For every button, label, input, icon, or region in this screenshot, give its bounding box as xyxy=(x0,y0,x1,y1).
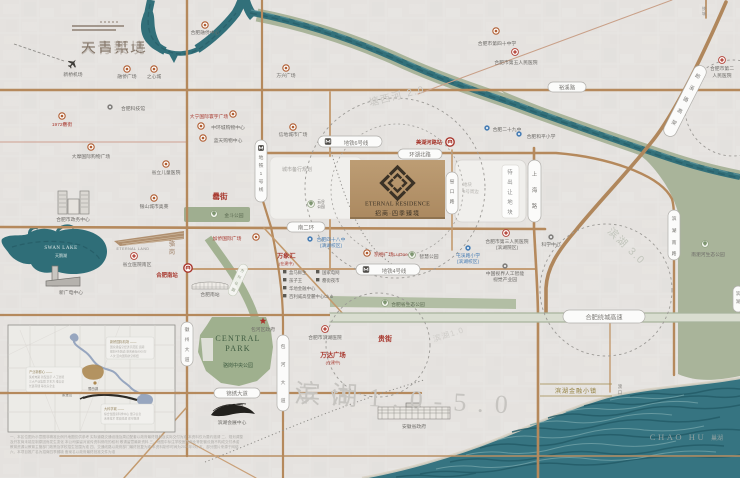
svg-text:一、本区位图为示意图非精准比例尺地图仅供参考 实际道路交通设: 一、本区位图为示意图非精准比例尺地图仅供参考 实际道路交通设施及周边配套以政府最… xyxy=(10,434,243,439)
svg-text:未来技术 聚变能源 深空探测: 未来技术 聚变能源 深空探测 xyxy=(104,417,139,421)
svg-text:合肥南站: 合肥南站 xyxy=(156,271,178,279)
svg-text:天鹅湖: 天鹅湖 xyxy=(55,252,67,258)
svg-text:道: 道 xyxy=(185,356,190,363)
svg-text:岗: 岗 xyxy=(169,249,175,256)
svg-text:合肥二十九中: 合肥二十九中 xyxy=(493,126,522,133)
svg-text:CENTRAL: CENTRAL xyxy=(215,334,260,343)
svg-text:智慧公园: 智慧公园 xyxy=(419,253,438,260)
svg-text:地铁4号线: 地铁4号线 xyxy=(382,267,407,275)
svg-text:滨: 滨 xyxy=(672,215,677,222)
svg-text:盒马鲜生: 盒马鲜生 xyxy=(289,269,307,276)
svg-text:让: 让 xyxy=(507,188,513,196)
svg-text:路: 路 xyxy=(450,198,455,205)
svg-text:南二环: 南二环 xyxy=(298,224,315,232)
svg-text:(滨湖校区): (滨湖校区) xyxy=(457,258,480,265)
svg-text:骆: 骆 xyxy=(169,240,175,248)
svg-text:大科学城 ——: 大科学城 —— xyxy=(104,406,125,411)
svg-text:新桥国际机场 ——: 新桥国际机场 —— xyxy=(110,339,137,344)
svg-text:出: 出 xyxy=(507,178,512,186)
svg-text:新广电中心: 新广电中心 xyxy=(59,289,83,296)
svg-text:中国视界人工智能: 中国视界人工智能 xyxy=(486,270,525,277)
svg-text:合肥科技馆: 合肥科技馆 xyxy=(121,105,145,112)
svg-text:ETERNAL RESIDENCE: ETERNAL RESIDENCE xyxy=(365,202,430,208)
svg-text:信地城市广场: 信地城市广场 xyxy=(279,131,308,138)
svg-text:凯德广场LuOne: 凯德广场LuOne xyxy=(374,251,408,258)
svg-text:孩子王: 孩子王 xyxy=(289,277,303,284)
svg-text:安徽省政府: 安徽省政府 xyxy=(402,423,426,430)
svg-text:PARK: PARK xyxy=(225,344,250,353)
svg-text:之心城: 之心城 xyxy=(147,73,162,80)
svg-text:国家电网: 国家电网 xyxy=(322,269,340,276)
svg-text:(在建中): (在建中) xyxy=(279,260,294,266)
svg-text:合肥融侨中心: 合肥融侨中心 xyxy=(191,29,220,36)
svg-text:银山城市奥莱: 银山城市奥莱 xyxy=(140,203,169,210)
svg-text:绕: 绕 xyxy=(702,6,706,11)
svg-text:1972罍街: 1972罍街 xyxy=(52,121,72,128)
svg-text:口: 口 xyxy=(618,390,622,395)
svg-text:集成电路 新型显示 人工智能: 集成电路 新型显示 人工智能 xyxy=(29,375,64,379)
svg-text:8号周边: 8号周边 xyxy=(463,188,479,195)
svg-text:中环城购物中心: 中环城购物中心 xyxy=(211,124,245,131)
svg-text:渡: 渡 xyxy=(618,383,623,390)
svg-text:徽: 徽 xyxy=(185,326,190,333)
svg-text:省立儿童医院: 省立儿童医院 xyxy=(152,169,181,176)
svg-text:合肥市第二: 合肥市第二 xyxy=(710,65,734,72)
svg-text:大: 大 xyxy=(185,346,190,353)
svg-text:ETERNAL LAND: ETERNAL LAND xyxy=(116,247,149,251)
svg-text:南淝河生态公园: 南淝河生态公园 xyxy=(691,251,725,258)
svg-text:地: 地 xyxy=(259,154,264,161)
svg-text:合肥市第四十中学: 合肥市第四十中学 xyxy=(478,40,517,47)
svg-text:滨湖金融小镇: 滨湖金融小镇 xyxy=(555,387,597,395)
svg-text:CHAO HU: CHAO HU xyxy=(650,432,706,442)
svg-text:云谷: 云谷 xyxy=(317,199,325,204)
svg-text:湖: 湖 xyxy=(672,227,677,234)
svg-text:大: 大 xyxy=(281,379,286,386)
svg-text:包河区政府: 包河区政府 xyxy=(251,326,275,333)
svg-text:省立医院南区: 省立医院南区 xyxy=(123,261,152,268)
svg-text:屯溪路小学: 屯溪路小学 xyxy=(456,252,480,259)
svg-text:天青椠境: 天青椠境 xyxy=(81,40,147,56)
svg-text:海: 海 xyxy=(532,186,538,194)
svg-text:1: 1 xyxy=(260,171,263,177)
svg-text:号: 号 xyxy=(259,179,264,185)
svg-text:人次 迈向国际航空枢纽: 人次 迈向国际航空枢纽 xyxy=(110,354,139,358)
svg-text:招商·四季臻境: 招商·四季臻境 xyxy=(375,210,420,218)
svg-text:公园: 公园 xyxy=(317,204,325,209)
svg-text:湖: 湖 xyxy=(736,298,740,305)
svg-text:蜀西湖: 蜀西湖 xyxy=(88,386,99,391)
svg-text:大宁国际寰宇广场: 大宁国际寰宇广场 xyxy=(190,113,229,120)
svg-text:万达广场: 万达广场 xyxy=(319,350,346,359)
svg-text:环湖北路: 环湖北路 xyxy=(409,151,431,159)
svg-text:及开发商未能控制原因而发生变化 本公司保留对宣传资料修改的权: 及开发商未能控制原因而发生变化 本公司保留对宣传资料修改的权利 敬请留意最新资料… xyxy=(10,439,240,444)
svg-text:金斗公园: 金斗公园 xyxy=(224,212,243,219)
svg-text:融侨广场: 融侨广场 xyxy=(117,73,136,80)
svg-text:美湖河路站: 美湖河路站 xyxy=(416,138,443,146)
svg-text:包: 包 xyxy=(281,343,286,350)
svg-text:河: 河 xyxy=(281,361,286,368)
svg-text:综合性国家科学中心 量子信息: 综合性国家科学中心 量子信息 xyxy=(104,412,141,416)
svg-text:人民医院: 人民医院 xyxy=(712,72,731,79)
svg-text:万象汇: 万象汇 xyxy=(276,252,296,260)
svg-text:国家级临空经济示范区 远期: 国家级临空经济示范区 远期 xyxy=(110,345,145,349)
svg-text:教育资源以教育主管部门政策及学校招生范围为准 四、交通线路以: 教育资源以教育主管部门政策及学校招生范围为准 四、交通线路以政府部门最终批复为准… xyxy=(10,444,239,449)
svg-text:南: 南 xyxy=(672,239,677,246)
svg-text:规划4条跑道 旅客吞吐8000万: 规划4条跑道 旅客吞吐8000万 xyxy=(110,350,147,354)
svg-text:合肥市第三人民医院: 合肥市第三人民医院 xyxy=(485,238,528,245)
svg-text:合肥和平小学: 合肥和平小学 xyxy=(527,133,556,140)
svg-text:巢湖: 巢湖 xyxy=(711,434,723,442)
svg-text:贵街: 贵街 xyxy=(378,334,392,343)
svg-text:(在建中): (在建中) xyxy=(326,359,341,365)
svg-text:锦绣大道: 锦绣大道 xyxy=(226,390,248,398)
svg-text:窑: 窑 xyxy=(450,178,455,185)
svg-text:华地金融中心: 华地金融中心 xyxy=(289,285,316,292)
svg-text:六、本项目推广名为招商四季臻境 备案名以政府最终批准文件为准: 六、本项目推广名为招商四季臻境 备案名以政府最终批准文件为准 xyxy=(10,449,116,454)
svg-text:SWAN LAKE: SWAN LAKE xyxy=(44,246,77,251)
svg-text:口: 口 xyxy=(450,189,455,195)
svg-text:铁: 铁 xyxy=(259,162,264,169)
svg-text:滨湖会展中心: 滨湖会展中心 xyxy=(218,419,247,426)
svg-text:块: 块 xyxy=(507,208,513,216)
svg-text:三大产业集群 京东方 维信诺: 三大产业集群 京东方 维信诺 xyxy=(29,380,64,384)
svg-text:合肥市滨湖医院: 合肥市滨湖医院 xyxy=(308,334,342,341)
svg-text:地: 地 xyxy=(507,198,513,206)
svg-text:骆岗中央公园: 骆岗中央公园 xyxy=(223,362,253,369)
svg-text:路: 路 xyxy=(532,202,538,210)
svg-text:合肥市第五人民医院: 合肥市第五人民医院 xyxy=(494,59,537,66)
svg-text:上: 上 xyxy=(532,170,538,178)
svg-text:罍街: 罍街 xyxy=(212,191,228,201)
svg-text:路: 路 xyxy=(672,250,677,257)
svg-text:产业新都心 ——: 产业新都心 —— xyxy=(29,369,53,374)
svg-text:百利威高登麓中心Club: 百利威高登麓中心Club xyxy=(289,293,334,300)
svg-text:裕溪路: 裕溪路 xyxy=(559,84,576,92)
svg-text:长鑫存储 等龙头企业: 长鑫存储 等龙头企业 xyxy=(29,384,55,388)
svg-text:(滨湖院区): (滨湖院区) xyxy=(496,244,519,251)
svg-text:加侨国际广场: 加侨国际广场 xyxy=(213,235,242,242)
svg-text:合肥南站: 合肥南站 xyxy=(200,291,219,298)
svg-text:线: 线 xyxy=(259,186,264,193)
svg-text:城: 城 xyxy=(702,11,706,16)
svg-text:合肥四十八中: 合肥四十八中 xyxy=(317,236,346,243)
svg-text:滨: 滨 xyxy=(736,290,740,297)
svg-text:罍街夜市: 罍街夜市 xyxy=(322,277,340,284)
svg-text:方兴广场: 方兴广场 xyxy=(276,72,295,79)
svg-text:合肥市政务中心: 合肥市政务中心 xyxy=(56,216,90,223)
svg-text:待: 待 xyxy=(507,168,513,176)
svg-text:科学中心: 科学中心 xyxy=(541,241,560,248)
svg-text:蓝天购物中心: 蓝天购物中心 xyxy=(214,137,243,144)
svg-text:州: 州 xyxy=(185,337,190,343)
svg-text:合肥省生态公园: 合肥省生态公园 xyxy=(391,301,425,308)
svg-text:合肥绕城高速: 合肥绕城高速 xyxy=(585,314,622,322)
svg-text:大摩国际购物广场: 大摩国际购物广场 xyxy=(72,153,111,160)
svg-text:视觉产业园: 视觉产业园 xyxy=(493,276,517,283)
svg-text:(滨湖校区): (滨湖校区) xyxy=(320,242,343,249)
svg-text:地铁6号线: 地铁6号线 xyxy=(344,139,369,147)
svg-text:地块: 地块 xyxy=(463,181,472,188)
svg-text:新桥机场: 新桥机场 xyxy=(63,71,82,78)
svg-text:道: 道 xyxy=(281,397,286,404)
